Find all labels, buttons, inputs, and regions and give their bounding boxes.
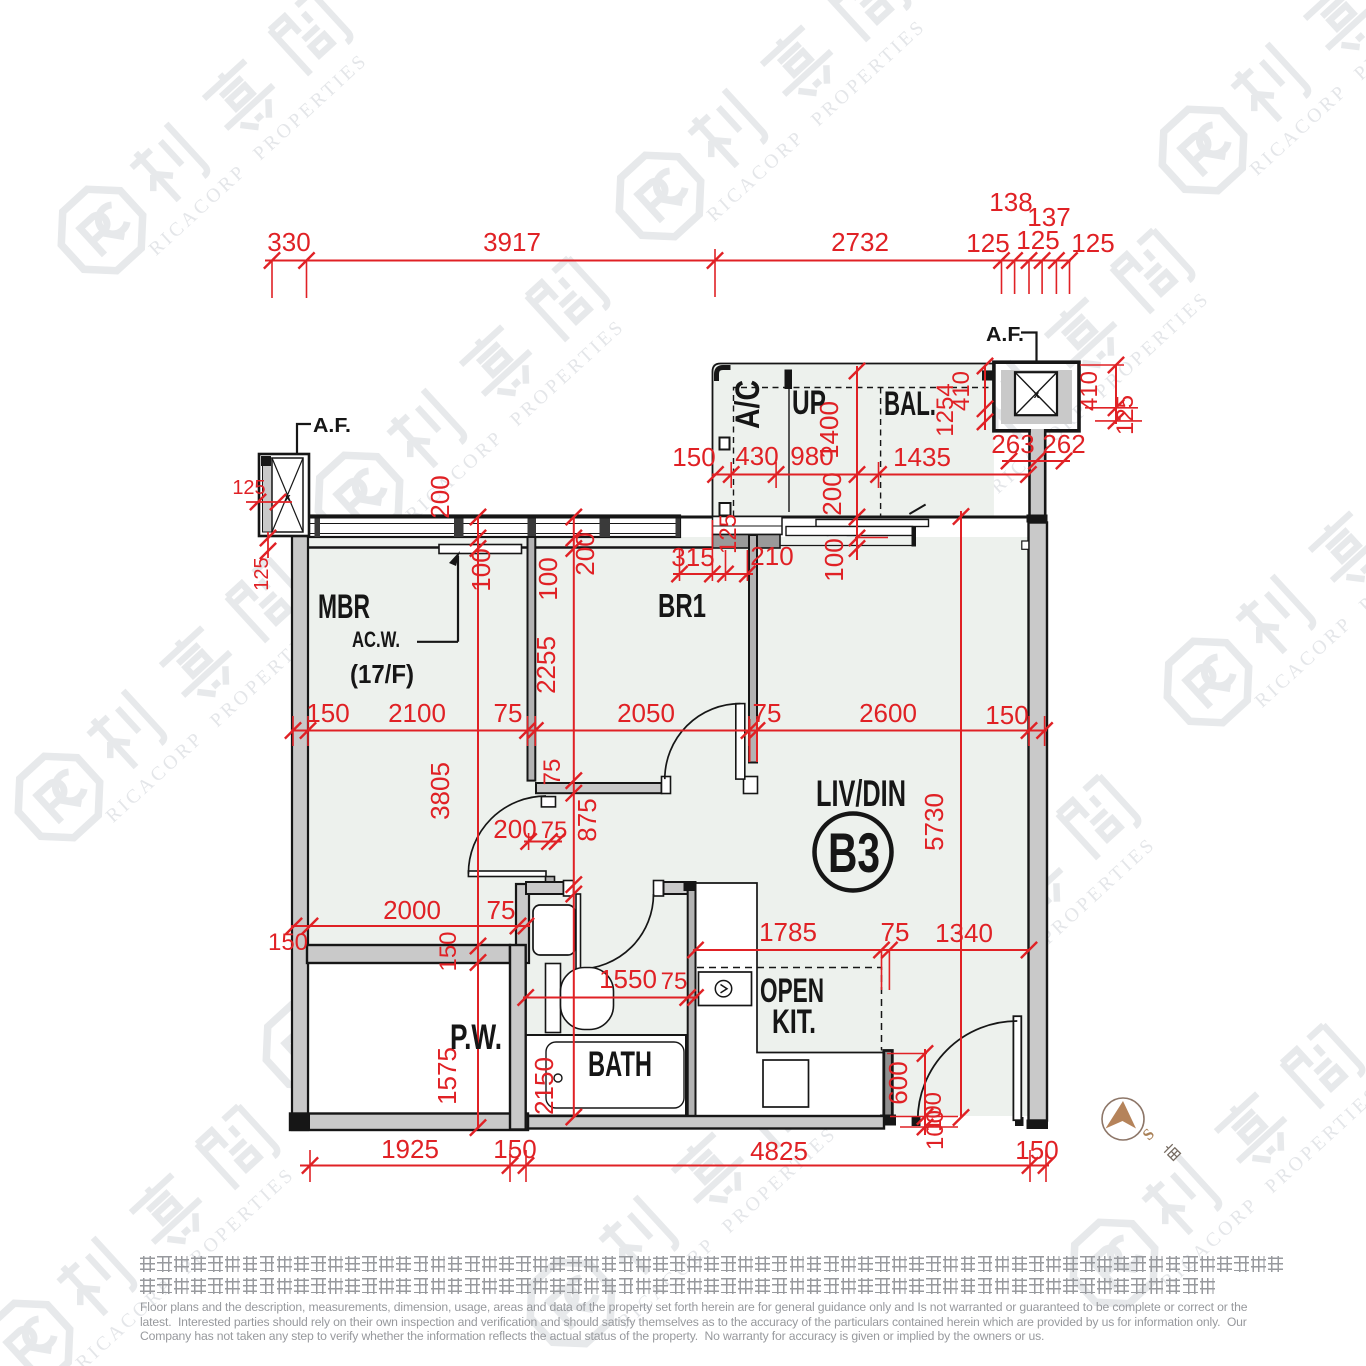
- svg-text:S: S: [1140, 1126, 1158, 1144]
- svg-text:100: 100: [533, 557, 563, 600]
- svg-text:B3: B3: [828, 821, 880, 884]
- svg-text:210: 210: [750, 541, 793, 571]
- svg-text:LIV/DIN: LIV/DIN: [816, 773, 906, 814]
- svg-text:1550: 1550: [599, 964, 657, 994]
- svg-text:1340: 1340: [935, 918, 993, 948]
- svg-text:BAL.: BAL.: [884, 385, 936, 423]
- svg-text:BATH: BATH: [588, 1045, 652, 1084]
- svg-text:(17/F): (17/F): [350, 659, 414, 689]
- svg-text:125: 125: [1112, 395, 1139, 435]
- svg-text:263: 263: [991, 429, 1034, 459]
- svg-text:2600: 2600: [859, 698, 917, 728]
- svg-text:125: 125: [232, 477, 265, 499]
- svg-text:KIT.: KIT.: [772, 1003, 816, 1041]
- svg-text:430: 430: [735, 441, 778, 471]
- svg-text:262: 262: [1042, 429, 1085, 459]
- svg-text:150: 150: [306, 698, 349, 728]
- svg-text:150: 150: [672, 442, 715, 472]
- svg-text:75: 75: [541, 817, 568, 844]
- svg-text:A.F.: A.F.: [986, 324, 1024, 346]
- svg-text:125: 125: [966, 228, 1009, 258]
- svg-text:150: 150: [435, 931, 462, 971]
- svg-text:2000: 2000: [383, 895, 441, 925]
- svg-text:2050: 2050: [617, 698, 675, 728]
- svg-text:x: x: [1034, 390, 1040, 401]
- svg-text:150: 150: [493, 1134, 536, 1164]
- svg-text:200: 200: [425, 475, 455, 518]
- svg-text:2100: 2100: [388, 698, 446, 728]
- svg-text:2255: 2255: [531, 636, 561, 694]
- svg-text:875: 875: [572, 798, 602, 841]
- svg-text:75: 75: [494, 698, 523, 728]
- svg-text:200: 200: [570, 532, 600, 575]
- svg-text:75: 75: [881, 917, 910, 947]
- svg-text:137: 137: [1027, 202, 1070, 232]
- svg-text:138: 138: [989, 187, 1032, 217]
- svg-text:150: 150: [1015, 1135, 1058, 1165]
- svg-text:BR1: BR1: [658, 587, 706, 624]
- svg-text:125: 125: [251, 557, 273, 590]
- svg-text:75: 75: [661, 968, 688, 995]
- svg-text:1785: 1785: [759, 917, 817, 947]
- svg-text:330: 330: [267, 227, 310, 257]
- svg-text:4825: 4825: [750, 1136, 808, 1166]
- svg-text:A.F.: A.F.: [313, 415, 351, 437]
- svg-text:600: 600: [883, 1061, 913, 1104]
- svg-text:200: 200: [817, 472, 847, 515]
- svg-text:1925: 1925: [381, 1134, 439, 1164]
- svg-text:75: 75: [539, 759, 566, 786]
- svg-text:2732: 2732: [831, 227, 889, 257]
- svg-text:3917: 3917: [483, 227, 541, 257]
- svg-text:UP: UP: [792, 384, 826, 422]
- svg-text:P.W.: P.W.: [450, 1018, 502, 1057]
- svg-text:2150: 2150: [529, 1057, 559, 1115]
- svg-text:100: 100: [922, 1110, 949, 1150]
- svg-text:75: 75: [487, 895, 516, 925]
- svg-text:150: 150: [985, 700, 1028, 730]
- svg-text:125: 125: [1071, 228, 1114, 258]
- svg-text:200: 200: [493, 814, 536, 844]
- svg-text:125: 125: [715, 514, 742, 554]
- svg-text:410: 410: [1076, 371, 1103, 411]
- svg-text:AC.W.: AC.W.: [352, 627, 400, 652]
- svg-text:MBR: MBR: [318, 588, 370, 626]
- svg-text:150: 150: [268, 929, 308, 956]
- svg-text:5730: 5730: [919, 793, 949, 851]
- svg-text:100: 100: [819, 538, 849, 581]
- svg-text:1435: 1435: [893, 442, 951, 472]
- svg-text:3805: 3805: [425, 762, 455, 820]
- svg-text:315: 315: [671, 542, 714, 572]
- svg-text:100: 100: [466, 548, 496, 591]
- svg-text:A/C: A/C: [729, 380, 767, 429]
- svg-text:410: 410: [948, 371, 975, 411]
